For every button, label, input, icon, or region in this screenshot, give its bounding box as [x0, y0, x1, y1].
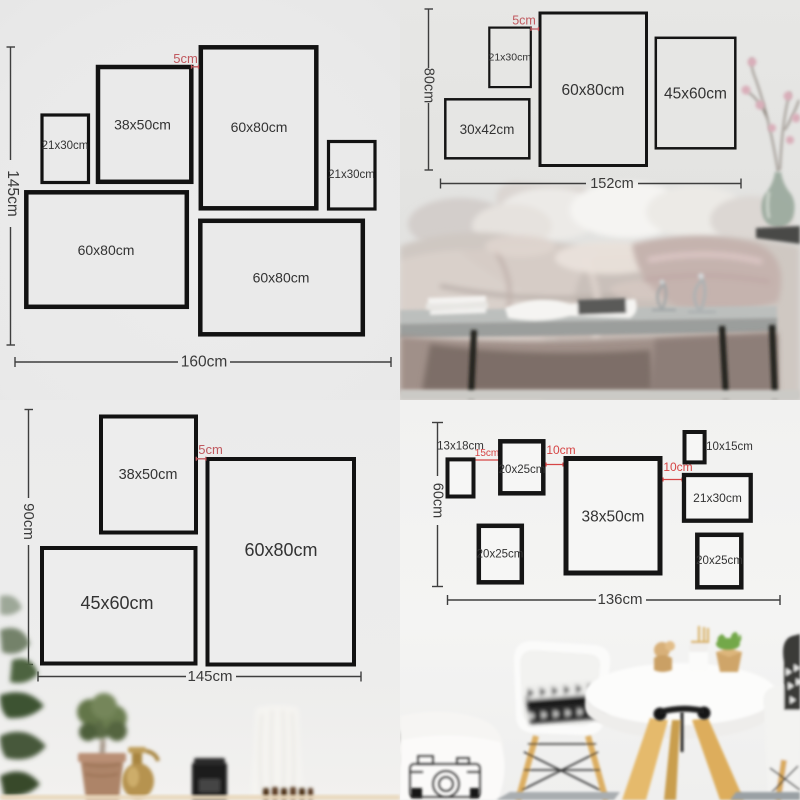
svg-text:60x80cm: 60x80cm: [78, 242, 135, 258]
svg-text:5cm: 5cm: [512, 14, 536, 28]
svg-text:60x80cm: 60x80cm: [231, 119, 288, 135]
svg-text:21x30cm: 21x30cm: [488, 52, 531, 64]
svg-text:80cm: 80cm: [421, 68, 437, 103]
svg-text:60x80cm: 60x80cm: [244, 540, 317, 560]
svg-text:60x80cm: 60x80cm: [562, 82, 625, 99]
svg-text:5cm: 5cm: [173, 51, 198, 66]
svg-text:21x30cm: 21x30cm: [42, 140, 89, 152]
svg-text:60cm: 60cm: [430, 483, 446, 518]
svg-text:20x25cm: 20x25cm: [499, 464, 546, 476]
svg-text:152cm: 152cm: [590, 176, 634, 192]
svg-text:38x50cm: 38x50cm: [114, 117, 171, 133]
svg-text:45x60cm: 45x60cm: [80, 593, 153, 613]
svg-text:20x25cm: 20x25cm: [477, 549, 524, 561]
svg-text:145cm: 145cm: [187, 668, 232, 685]
svg-text:90cm: 90cm: [20, 503, 37, 540]
svg-text:136cm: 136cm: [597, 591, 642, 608]
svg-text:21x30cm: 21x30cm: [693, 491, 742, 505]
svg-text:145cm: 145cm: [4, 170, 21, 217]
svg-text:60x80cm: 60x80cm: [253, 270, 310, 286]
svg-text:160cm: 160cm: [181, 354, 228, 371]
svg-text:38x50cm: 38x50cm: [119, 467, 178, 483]
svg-text:10cm: 10cm: [546, 443, 575, 457]
svg-text:21x30cm: 21x30cm: [328, 169, 375, 181]
svg-text:20x25cm: 20x25cm: [696, 555, 743, 567]
svg-text:45x60cm: 45x60cm: [664, 86, 727, 103]
svg-text:10x15cm: 10x15cm: [706, 441, 753, 453]
svg-text:15cm: 15cm: [475, 448, 499, 459]
svg-text:38x50cm: 38x50cm: [582, 509, 645, 526]
svg-text:30x42cm: 30x42cm: [460, 122, 515, 137]
svg-text:5cm: 5cm: [198, 442, 223, 457]
